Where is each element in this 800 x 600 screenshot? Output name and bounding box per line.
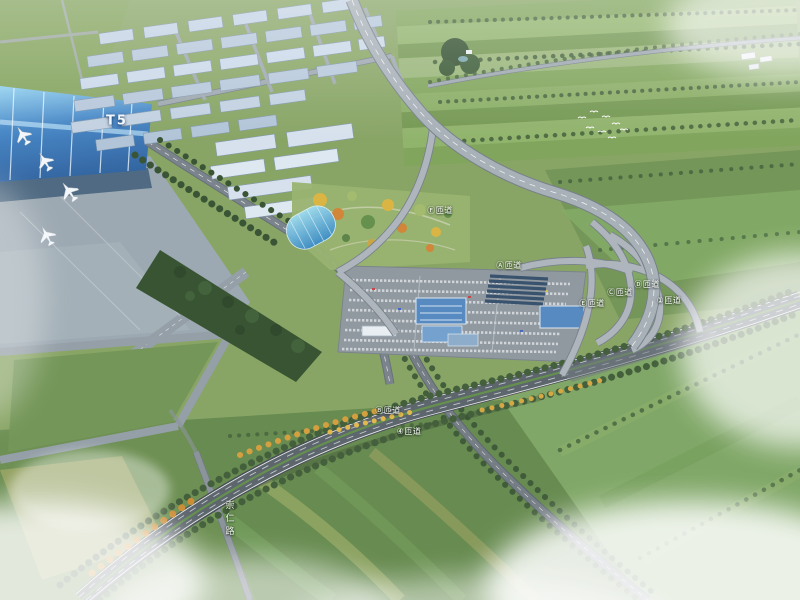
aerial-rendering: T5 Ⓕ匝道 Ⓐ匝道 Ⓓ匝道 Ⓒ匝道 Ⓔ匝道 ①匝道 Ⓑ匝道 ④匝道 崇仁路	[0, 0, 800, 600]
ramp-label-a: Ⓐ匝道	[496, 262, 522, 270]
ramp-label-1: ①匝道	[657, 297, 682, 305]
ramp-label-b: Ⓑ匝道	[375, 407, 401, 415]
ramp-label-f: Ⓕ匝道	[427, 207, 453, 215]
ramp-label-d: Ⓓ匝道	[634, 281, 660, 289]
ramp-label-e: Ⓔ匝道	[579, 300, 605, 308]
ramp-label-c: Ⓒ匝道	[607, 289, 633, 297]
ramp-label-4: ④匝道	[397, 428, 422, 436]
terminal-t5-label: T5	[106, 115, 128, 128]
road-label-chongren: 崇仁路	[224, 500, 233, 539]
